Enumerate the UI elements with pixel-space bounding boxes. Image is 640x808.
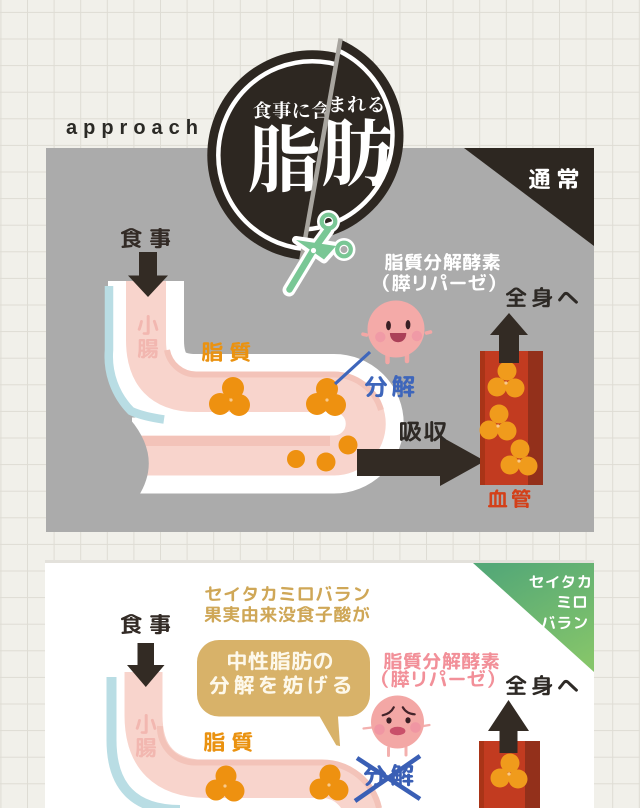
svg-text:approach: approach	[66, 117, 204, 139]
